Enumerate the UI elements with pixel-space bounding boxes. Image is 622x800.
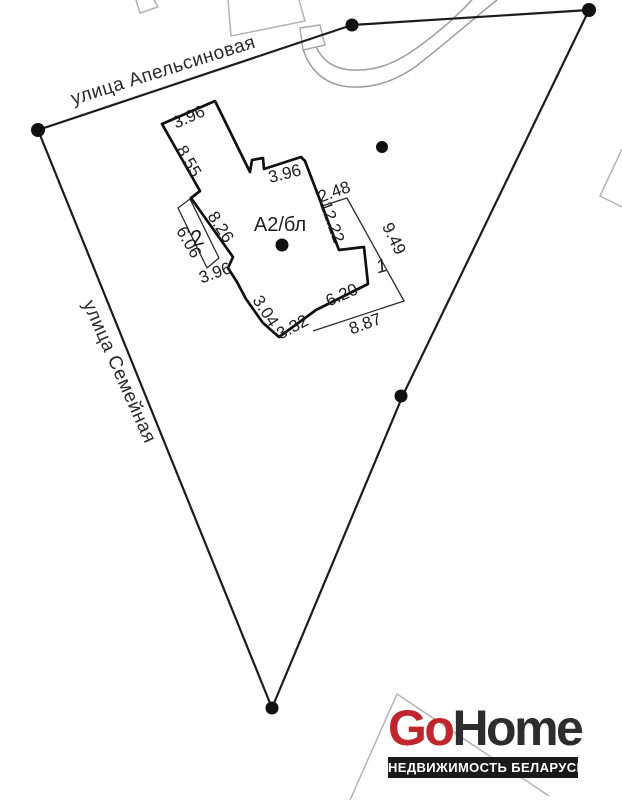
yard-point [376, 141, 388, 153]
boundary-point-top [346, 19, 359, 32]
dim-annex1-right-edge: 9.49 [378, 220, 410, 258]
neighbor-building-top-left [136, 0, 158, 13]
street-label-top: улица Апельсиновая [68, 32, 258, 110]
vertex-point-south [266, 702, 279, 715]
vertex-point-northeast [582, 3, 596, 17]
dim-annex1-bottom-edge: 8.87 [346, 309, 384, 338]
neighbor-building-right-edge [600, 149, 622, 207]
annex1-number: 1 [374, 255, 390, 278]
gohome-logo-home: Home [452, 700, 581, 756]
gohome-logo-wordmark: GoHome [388, 700, 580, 756]
site-plan-svg: улица Апельсиновая улица Семейная А2/бл … [0, 0, 622, 800]
site-plan-canvas: улица Апельсиновая улица Семейная А2/бл … [0, 0, 622, 800]
building-label: А2/бл [254, 214, 306, 236]
vertex-point-west [31, 123, 45, 137]
boundary-point-east [395, 390, 408, 403]
gohome-logo-tagline: НЕДВИЖИМОСТЬ БЕЛАРУСИ [388, 757, 578, 778]
road-curve-outer [303, 0, 497, 87]
neighbor-building-top-middle [228, 0, 305, 36]
gohome-logo: GoHome НЕДВИЖИМОСТЬ БЕЛАРУСИ [388, 700, 580, 778]
street-label-left: улица Семейная [78, 297, 160, 447]
road-curve-inner [312, 0, 472, 70]
building-point [276, 239, 289, 252]
gohome-logo-go: Go [388, 700, 452, 756]
dim-annex2-bottom-edge: 3.96 [196, 258, 234, 287]
